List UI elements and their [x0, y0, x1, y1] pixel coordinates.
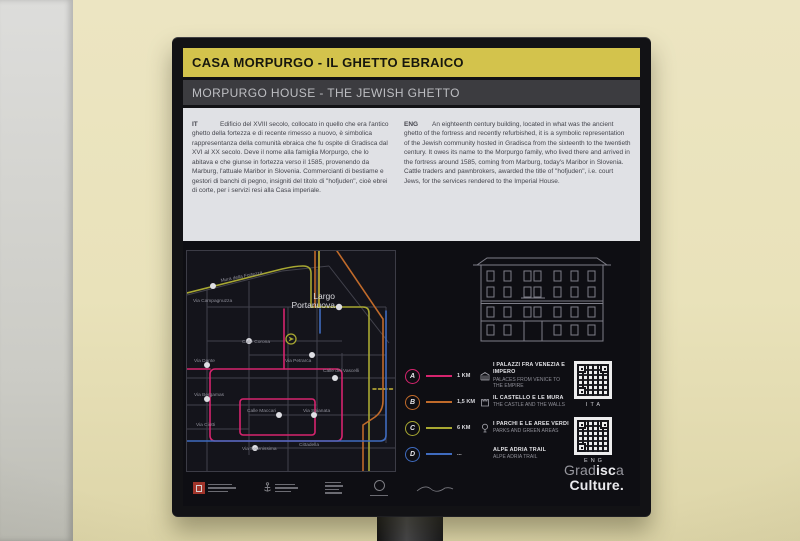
partner-logo-3	[325, 482, 343, 494]
sign-title-italian: CASA MORPURGO - IL GHETTO EBRAICO	[183, 48, 640, 77]
route-c-letter: C	[410, 425, 415, 432]
you-are-here-marker	[286, 334, 296, 344]
partner-logo-5	[415, 482, 455, 494]
street-map: Mura della Fortezza Via Campagnuzza Call…	[186, 250, 396, 472]
route-a-badge: A	[405, 369, 420, 384]
qr-code-ita	[574, 361, 612, 399]
it-body: Edificio del XVIII secolo, collocato in …	[192, 121, 389, 194]
street-label: Cittadella	[299, 442, 319, 448]
qr-code-eng	[574, 417, 612, 455]
route-c-label: I PARCHI E LE AREE VERDIPARKS AND GREEN …	[493, 421, 569, 435]
route-d-distance: ...	[457, 451, 480, 457]
dark-info-section: Mura della Fortezza Via Campagnuzza Call…	[183, 241, 640, 506]
route-b-badge: B	[405, 395, 420, 410]
legend-row-b: B 1,5 KM IL CASTELLO E LE MURATHE CASTLE…	[405, 389, 571, 415]
route-d-label: ALPE ADRIA TRAILALPE ADRIA TRAIL	[493, 447, 546, 461]
paragraph-english: ENGAn eighteenth century building, locat…	[404, 120, 631, 229]
legend-row-a: A 1 KM I PALAZZI FRA VENEZIA E IMPEROPAL…	[405, 363, 571, 389]
eng-body: An eighteenth century building, located …	[404, 121, 631, 185]
building-facade-illustration	[457, 249, 627, 349]
street-label: Via Petrarca	[285, 358, 312, 364]
qr-block-english: ENG	[571, 417, 615, 464]
route-a-label: I PALAZZI FRA VENEZIA E IMPEROPALACES FR…	[493, 362, 571, 390]
gradisca-culture-wordmark: Gradisca Culture.	[564, 463, 624, 494]
street-label: Via Spianata	[303, 408, 330, 414]
qr-code-column: ITA ENG	[571, 361, 615, 464]
castle-icon	[480, 397, 493, 407]
route-legend: A 1 KM I PALAZZI FRA VENEZIA E IMPEROPAL…	[405, 363, 571, 467]
brand-line-1: Gradisca	[564, 463, 624, 479]
signature-logo	[415, 482, 455, 494]
route-d-letter: D	[410, 451, 415, 458]
paragraph-italian: ITEdificio del XVIII secolo, collocato i…	[192, 120, 390, 229]
partner-logo-2	[263, 482, 298, 493]
round-emblem-icon	[374, 480, 385, 491]
wall-pilaster	[0, 0, 73, 541]
route-b-color-line	[426, 401, 452, 403]
brand-line-2: Culture.	[564, 478, 624, 494]
palace-icon	[480, 371, 493, 381]
sign-title-english: MORPURGO HOUSE - THE JEWISH GHETTO	[183, 80, 640, 105]
information-sign-panel: CASA MORPURGO - IL GHETTO EBRAICO MORPUR…	[172, 37, 651, 517]
qr-label-ita: ITA	[571, 402, 615, 408]
place-label-largo-portanuova: Largo Portanuova	[292, 291, 336, 310]
route-a-color-line	[426, 375, 452, 377]
street-label: Calle Maccari	[247, 408, 276, 414]
street-label: Mura della Fortezza	[220, 270, 263, 284]
legend-row-d: D ... ALPE ADRIA TRAILALPE ADRIA TRAIL	[405, 441, 571, 467]
street-label: Calle dei Vascelli	[323, 368, 359, 374]
route-c-distance: 6 KM	[457, 425, 480, 431]
street-label: Via Serenissima	[242, 446, 277, 452]
qr-block-italian: ITA	[571, 361, 615, 408]
route-b-distance: 1,5 KM	[457, 399, 480, 405]
intro-text-section: ITEdificio del XVIII secolo, collocato i…	[183, 108, 640, 241]
municipal-crest-icon	[193, 482, 205, 494]
street-label: Via Campagnuzza	[193, 298, 232, 304]
route-c-color-line	[426, 427, 452, 429]
route-c-badge: C	[405, 421, 420, 436]
route-d-color-line	[426, 453, 452, 455]
partner-logo-strip	[193, 480, 455, 497]
street-label: Via Bergamas	[194, 392, 225, 398]
street-map-drawing: Mura della Fortezza Via Campagnuzza Call…	[187, 251, 395, 471]
route-b-letter: B	[410, 399, 415, 406]
photo-of-information-sign: CASA MORPURGO - IL GHETTO EBRAICO MORPUR…	[0, 0, 800, 541]
tree-icon	[480, 423, 493, 433]
route-a-distance: 1 KM	[457, 373, 480, 379]
partner-logo-1	[193, 482, 236, 494]
street-label: Calle Corona	[242, 339, 270, 345]
title-it-text: CASA MORPURGO - IL GHETTO EBRAICO	[192, 55, 464, 70]
eng-label: ENG	[404, 120, 432, 129]
street-label: Via Ciotti	[196, 422, 215, 428]
route-d-badge: D	[405, 447, 420, 462]
legend-row-c: C 6 KM I PARCHI E LE AREE VERDIPARKS AND…	[405, 415, 571, 441]
partner-logo-4	[370, 480, 388, 497]
route-b-label: IL CASTELLO E LE MURATHE CASTLE AND THE …	[493, 395, 565, 409]
svg-text:Portanuova: Portanuova	[292, 300, 336, 310]
title-en-text: MORPURGO HOUSE - THE JEWISH GHETTO	[192, 86, 460, 100]
anchor-icon	[263, 482, 272, 493]
it-label: IT	[192, 120, 220, 129]
route-a-letter: A	[410, 373, 415, 380]
street-label: Via Dante	[194, 358, 215, 364]
